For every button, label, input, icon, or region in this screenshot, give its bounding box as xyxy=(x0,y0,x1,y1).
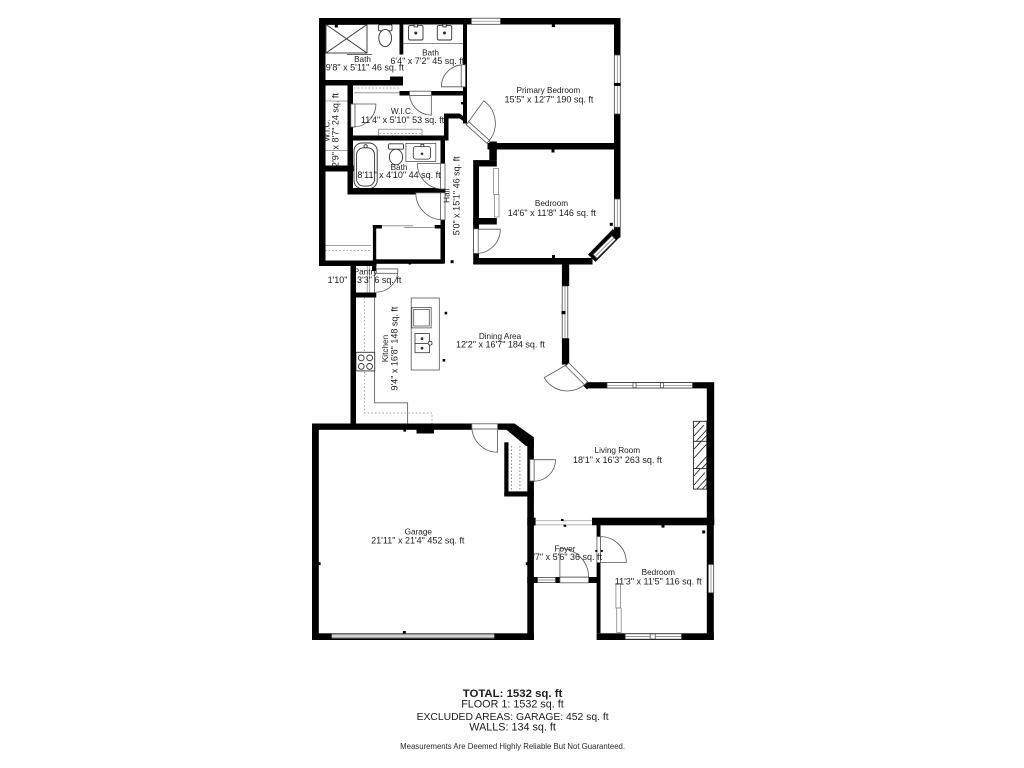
svg-text:WALLS: 134 sq. ft: WALLS: 134 sq. ft xyxy=(469,722,556,734)
svg-text:6'4" x 7'2" 45 sq. ft: 6'4" x 7'2" 45 sq. ft xyxy=(390,56,464,66)
svg-text:Bedroom: Bedroom xyxy=(535,199,568,208)
svg-text:12'2" x 16'7" 184 sq. ft: 12'2" x 16'7" 184 sq. ft xyxy=(456,340,545,350)
svg-text:11'4" x 5'10" 53 sq. ft: 11'4" x 5'10" 53 sq. ft xyxy=(361,115,445,125)
svg-text:5'0" x 15'1" 46 sq. ft: 5'0" x 15'1" 46 sq. ft xyxy=(452,156,462,235)
svg-text:Living Room: Living Room xyxy=(595,446,641,455)
svg-text:14'6" x 11'8" 146 sq. ft: 14'6" x 11'8" 146 sq. ft xyxy=(508,208,597,218)
svg-text:15'5" x 12'7" 190 sq. ft: 15'5" x 12'7" 190 sq. ft xyxy=(505,94,594,104)
svg-text:9'4" x 16'8" 148 sq. ft: 9'4" x 16'8" 148 sq. ft xyxy=(390,306,400,390)
svg-text:11'3" x 11'5" 116 sq. ft: 11'3" x 11'5" 116 sq. ft xyxy=(615,577,702,587)
svg-text:1'10" x 3'3" 6 sq. ft: 1'10" x 3'3" 6 sq. ft xyxy=(328,275,402,285)
svg-text:Measurements Are Deemed Highly: Measurements Are Deemed Highly Reliable … xyxy=(400,742,625,751)
svg-text:21'11" x 21'4" 452 sq. ft: 21'11" x 21'4" 452 sq. ft xyxy=(371,536,465,546)
svg-text:FLOOR 1: 1532 sq. ft: FLOOR 1: 1532 sq. ft xyxy=(461,699,564,711)
svg-text:18'1" x 16'3" 263 sq. ft: 18'1" x 16'3" 263 sq. ft xyxy=(573,455,662,465)
svg-text:'7" x 5'6" 36 sq. ft: '7" x 5'6" 36 sq. ft xyxy=(533,552,602,562)
svg-text:Hall: Hall xyxy=(443,189,452,203)
svg-text:8'11" x 4'10" 44 sq. ft: 8'11" x 4'10" 44 sq. ft xyxy=(357,170,441,180)
svg-text:2'9" x 8'7" 24 sq. ft: 2'9" x 8'7" 24 sq. ft xyxy=(330,93,340,167)
